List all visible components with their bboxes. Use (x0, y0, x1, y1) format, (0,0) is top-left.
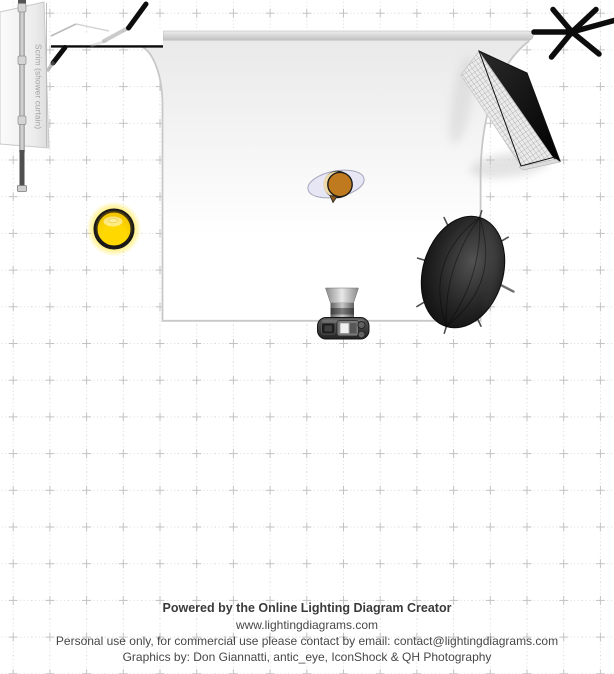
camera-dial (358, 331, 365, 338)
scrim-pole-lower (20, 150, 25, 187)
camera-lens-hood (326, 288, 359, 303)
scrim-label: Scrim (shower curtain) (34, 44, 43, 129)
diagram-canvas: Scrim (shower curtain) (0, 0, 614, 674)
footer-license-note: Personal use only, for commercial use pl… (0, 634, 614, 648)
backdrop-roll-bar (163, 31, 533, 40)
pole-bottom-cap (18, 186, 27, 192)
pole-top-cap (18, 0, 26, 4)
bulb-core-shade (96, 211, 133, 248)
pole-joint (18, 116, 26, 125)
camera-viewfinder-inner (325, 326, 333, 332)
camera-lens-ring (331, 308, 355, 315)
lighting-diagram-page: { "app": { "name": "Online Lighting Diag… (0, 0, 614, 674)
subject-head (328, 172, 352, 196)
footer-powered-by: Powered by the Online Lighting Diagram C… (0, 601, 614, 615)
bare-bulb-light[interactable] (87, 202, 142, 257)
footer-graphics-credits: Graphics by: Don Giannatti, antic_eye, I… (0, 650, 614, 664)
scrim-pole (20, 0, 25, 152)
boom-stand-hub (568, 28, 576, 36)
camera-screen (340, 323, 349, 334)
camera-dial (358, 322, 365, 329)
footer-website-link[interactable]: www.lightingdiagrams.com (0, 618, 614, 632)
camera-button-pad (350, 323, 357, 334)
pole-joint (18, 4, 26, 13)
bulb-filament (109, 219, 118, 223)
pole-joint (18, 56, 26, 65)
